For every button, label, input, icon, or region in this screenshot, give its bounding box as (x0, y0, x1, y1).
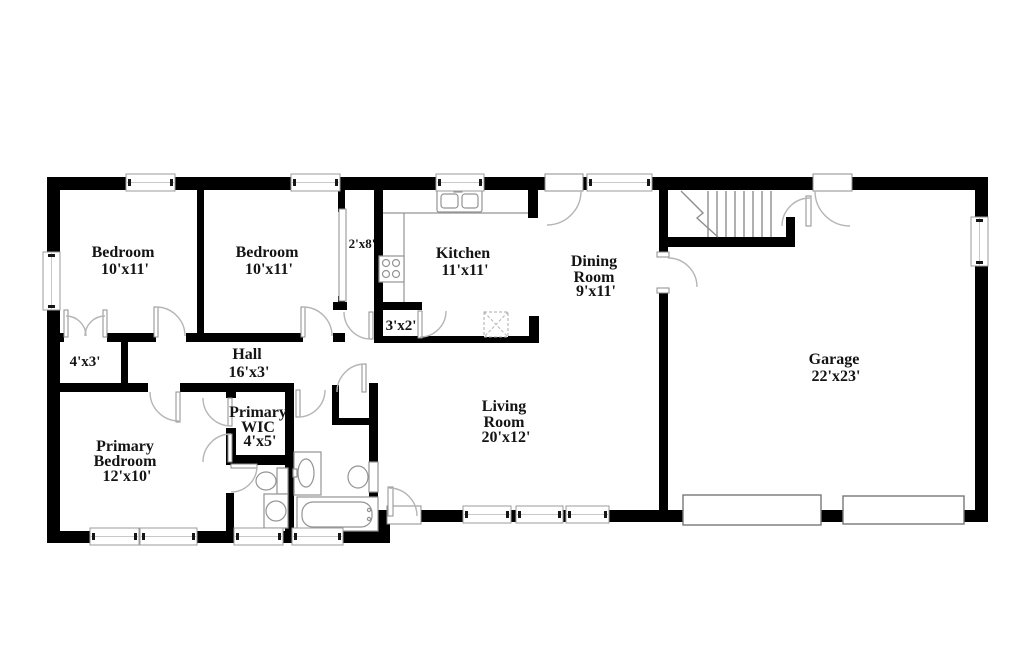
tub-faucet (367, 517, 370, 520)
wall-stairs-bottom (659, 237, 795, 247)
label-dining-room: Dining Room 9'x11' (571, 253, 621, 300)
label-bedroom1: Bedroom 10'x11' (92, 244, 159, 278)
wall-hall-top-c (186, 333, 303, 342)
wall-hall-bottom-a (47, 383, 148, 392)
tub-faucet (367, 508, 370, 511)
tub-basin (302, 502, 372, 527)
pedestal-sink (264, 494, 288, 528)
door-front (387, 487, 421, 524)
stair-break-line (681, 191, 718, 237)
door-closet4x3-double (64, 310, 107, 337)
wall-hall-top-a (47, 333, 64, 342)
toilet-tank (369, 462, 378, 492)
wall-kitchen-bottom (374, 336, 539, 343)
door-garage-side (657, 252, 697, 293)
label-kitchen: Kitchen 11'x11' (436, 245, 494, 279)
wall-hall-bottom-b (180, 383, 227, 392)
door-closet3x2 (418, 311, 446, 338)
wall-bedroom-divider (197, 190, 204, 333)
wall-closet3x2-top (383, 302, 422, 310)
vanity-faucet (293, 469, 297, 477)
doors (64, 174, 852, 524)
window (516, 506, 563, 523)
toilet-hall-bath (348, 462, 378, 492)
window (291, 174, 340, 191)
label-living-room: Living Room 20'x12' (482, 398, 531, 446)
label-garage: Garage 22'x23' (809, 351, 864, 385)
window (971, 217, 988, 266)
label-closet-3x2: 3'x2' (386, 318, 417, 334)
staircase (681, 191, 771, 237)
garage-door-2 (843, 496, 964, 524)
room-labels: Bedroom 10'x11' Bedroom 10'x11' Kitchen … (70, 236, 864, 485)
window (43, 252, 60, 310)
label-primary-bedroom: Primary Bedroom 12'x10' (94, 438, 161, 485)
toilet-bowl (348, 466, 368, 488)
stove (379, 256, 404, 282)
burner (383, 260, 390, 267)
wall-stairs-stub (786, 217, 795, 242)
door-primary-bedroom (150, 392, 180, 422)
label-bedroom2: Bedroom 10'x11' (236, 244, 303, 278)
window (436, 174, 484, 191)
floor-plan: Bedroom 10'x11' Bedroom 10'x11' Kitchen … (0, 0, 1024, 663)
sink-basin-right (462, 194, 478, 208)
window (587, 174, 652, 191)
window (140, 528, 197, 545)
sink-basin-left (441, 194, 458, 208)
window (292, 528, 343, 545)
label-hall: Hall 16'x3' (229, 346, 270, 381)
appliance-box (484, 312, 508, 337)
vanity-hall-bath (293, 452, 321, 495)
wall-linen-bottom (332, 418, 376, 425)
door-garage-rear (813, 174, 852, 226)
interior-walls (47, 188, 795, 531)
wall-bedroom2-right-top (338, 188, 345, 212)
wall-wic-left-nub (226, 392, 236, 398)
burner (383, 271, 390, 278)
burner (393, 260, 400, 267)
stair-treads (708, 191, 771, 237)
bathtub (297, 497, 378, 531)
door-linen-closet (337, 364, 366, 392)
label-primary-wic: Primary WIC 4'x5' (229, 404, 291, 450)
door-hall-kitchen (344, 312, 373, 339)
wall-closet2x8-bottom (333, 302, 347, 310)
wall-kitchen-stub (529, 316, 539, 343)
toilet-bowl (256, 472, 276, 490)
wall-wic-top (227, 383, 293, 392)
label-closet-2x8: 2'x8' (349, 236, 376, 251)
toilet-tank (277, 468, 288, 494)
window (463, 506, 511, 523)
door-bedroom2 (301, 307, 332, 337)
vanity-basin (298, 459, 314, 487)
garage-door-1 (683, 495, 821, 525)
wall-garage-left-lower (659, 288, 668, 510)
burner (393, 271, 400, 278)
window (126, 174, 175, 191)
wall-kitchen-dining-stub (528, 188, 538, 218)
stove-outline (379, 256, 404, 282)
door-bedroom1 (154, 307, 185, 337)
wall-hall-top-d (333, 333, 345, 342)
wall-closet4x3-right (121, 342, 128, 383)
sink-bowl (266, 501, 286, 521)
door-hall-bath (296, 390, 325, 417)
window (90, 528, 139, 545)
door-dining-rear (545, 174, 583, 225)
kitchen-sink (437, 188, 482, 212)
wall-left (47, 177, 60, 543)
door-closet2x8-sliding (339, 209, 346, 301)
wall-primary-bedroom-right (226, 493, 234, 531)
toilet-primary-bath (256, 468, 288, 494)
door-primary-bath (231, 464, 257, 492)
label-closet-4x3: 4'x3' (70, 354, 101, 370)
window (234, 528, 283, 545)
window (566, 506, 609, 523)
wall-hall-top-b (107, 333, 156, 342)
